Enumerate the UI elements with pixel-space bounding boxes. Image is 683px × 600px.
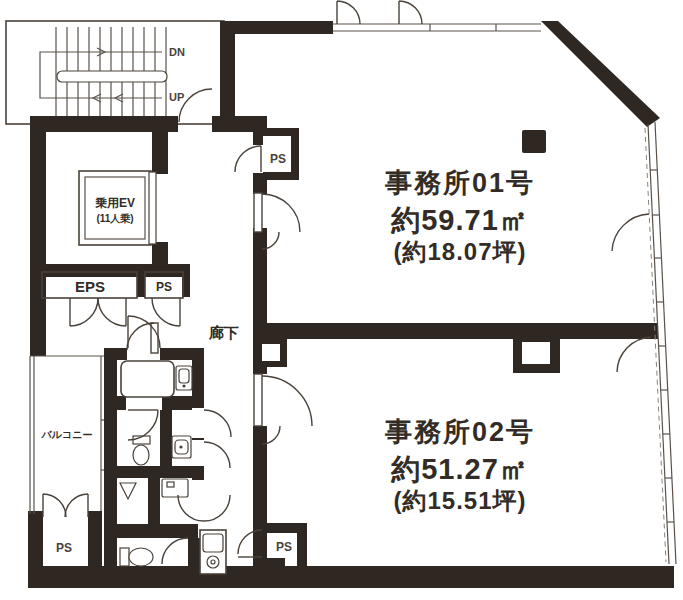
kitchenette [200, 530, 226, 574]
office2-window-door [617, 337, 651, 372]
balcony-label: バルコニー [41, 429, 93, 440]
corner-sink [120, 483, 136, 499]
office1-name: 事務所01号 [384, 168, 535, 198]
ps-top-label: PS [270, 152, 286, 166]
office2-area-m2: 約51.27㎡ [390, 453, 529, 485]
office2-name: 事務所02号 [384, 417, 535, 447]
floor-plan-drawing: DN UP [0, 0, 683, 600]
office1-labels: 事務所01号 約59.71㎡ (約18.07坪) [384, 168, 535, 265]
toilet2-tank [120, 548, 129, 566]
elevator: 乗用EV (11人乗) [79, 171, 156, 245]
stair-handrail [57, 71, 167, 82]
washbasin-room [172, 436, 191, 458]
ps-bottom-left-label: PS [56, 541, 72, 555]
kitchen-sink [203, 534, 223, 552]
ps-bottom-center-label: PS [276, 540, 292, 554]
toilet2-bowl [129, 548, 153, 566]
floor-plan: DN UP [0, 0, 683, 600]
balcony: バルコニー [30, 356, 104, 514]
office2-labels: 事務所02号 約51.27㎡ (約15.51坪) [384, 417, 535, 514]
office2-area-tsubo: (約15.51坪) [393, 487, 526, 514]
dividing-wall [253, 323, 658, 339]
stair-up-label: UP [169, 91, 184, 103]
bathtub [121, 361, 174, 397]
slop-sink [162, 479, 188, 497]
bottom-wall [30, 566, 674, 588]
office1-column [522, 130, 546, 153]
shaft-row: EPS PS [42, 272, 183, 326]
diagonal-wall [541, 21, 660, 127]
corridor-label: 廊下 [208, 324, 239, 341]
toilet-room-1 [133, 436, 150, 465]
stair-dn-label: DN [169, 46, 185, 58]
walls [28, 21, 674, 588]
roof-exit-doors [337, 1, 422, 24]
office1-area-m2: 約59.71㎡ [390, 204, 529, 236]
office1-area-tsubo: (約18.07坪) [393, 238, 526, 265]
lease-boundary-line [645, 128, 666, 562]
eps-label: EPS [75, 278, 105, 295]
elevator-capacity-label: (11人乗) [96, 213, 133, 224]
toilet-bowl [133, 445, 149, 465]
toilet-room-2 [120, 548, 153, 566]
ps-room-doors [43, 494, 88, 517]
ps-mid-label: PS [156, 280, 172, 294]
unit-bath [121, 361, 192, 397]
elevator-door [149, 172, 156, 244]
office1-window-door [612, 214, 649, 251]
stairwell: DN UP [6, 21, 224, 124]
ps-shaft-top: PS [235, 128, 299, 180]
elevator-label: 乗用EV [95, 196, 135, 210]
